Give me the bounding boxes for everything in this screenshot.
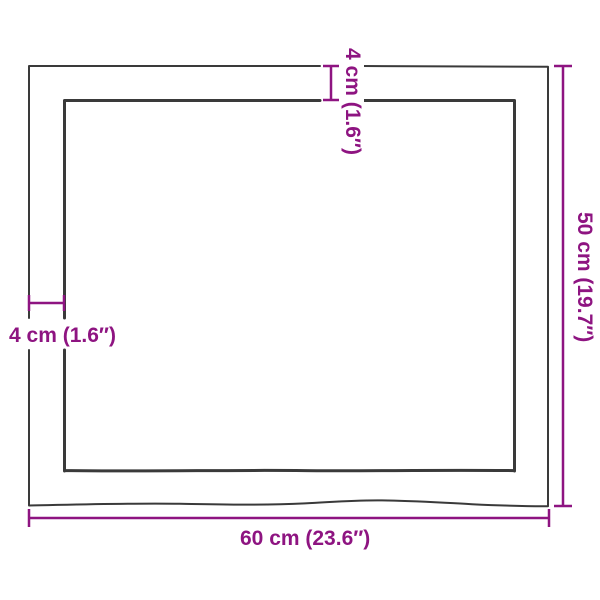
dimension-diagram: 4 cm (1.6″) 50 cm (19.7″) 4 cm (1.6″) 60…: [0, 0, 600, 600]
dim-label-left-thickness: 4 cm (1.6″): [7, 324, 118, 347]
dim-width-marker: [29, 509, 549, 527]
dim-label-width: 60 cm (23.6″): [238, 527, 372, 550]
panel-outlines: [29, 66, 548, 506]
dimension-lines: [29, 66, 572, 527]
dim-label-top-thickness: 4 cm (1.6″): [341, 46, 364, 157]
panel-inner-outline: [65, 101, 515, 472]
dim-label-height: 50 cm (19.7″): [573, 210, 596, 344]
dim-height-marker: [554, 66, 572, 506]
diagram-canvas: [0, 0, 600, 600]
dim-top-thickness-marker: [323, 66, 339, 100]
panel-outer-outline: [29, 66, 548, 506]
dim-left-thickness-marker: [29, 295, 64, 311]
